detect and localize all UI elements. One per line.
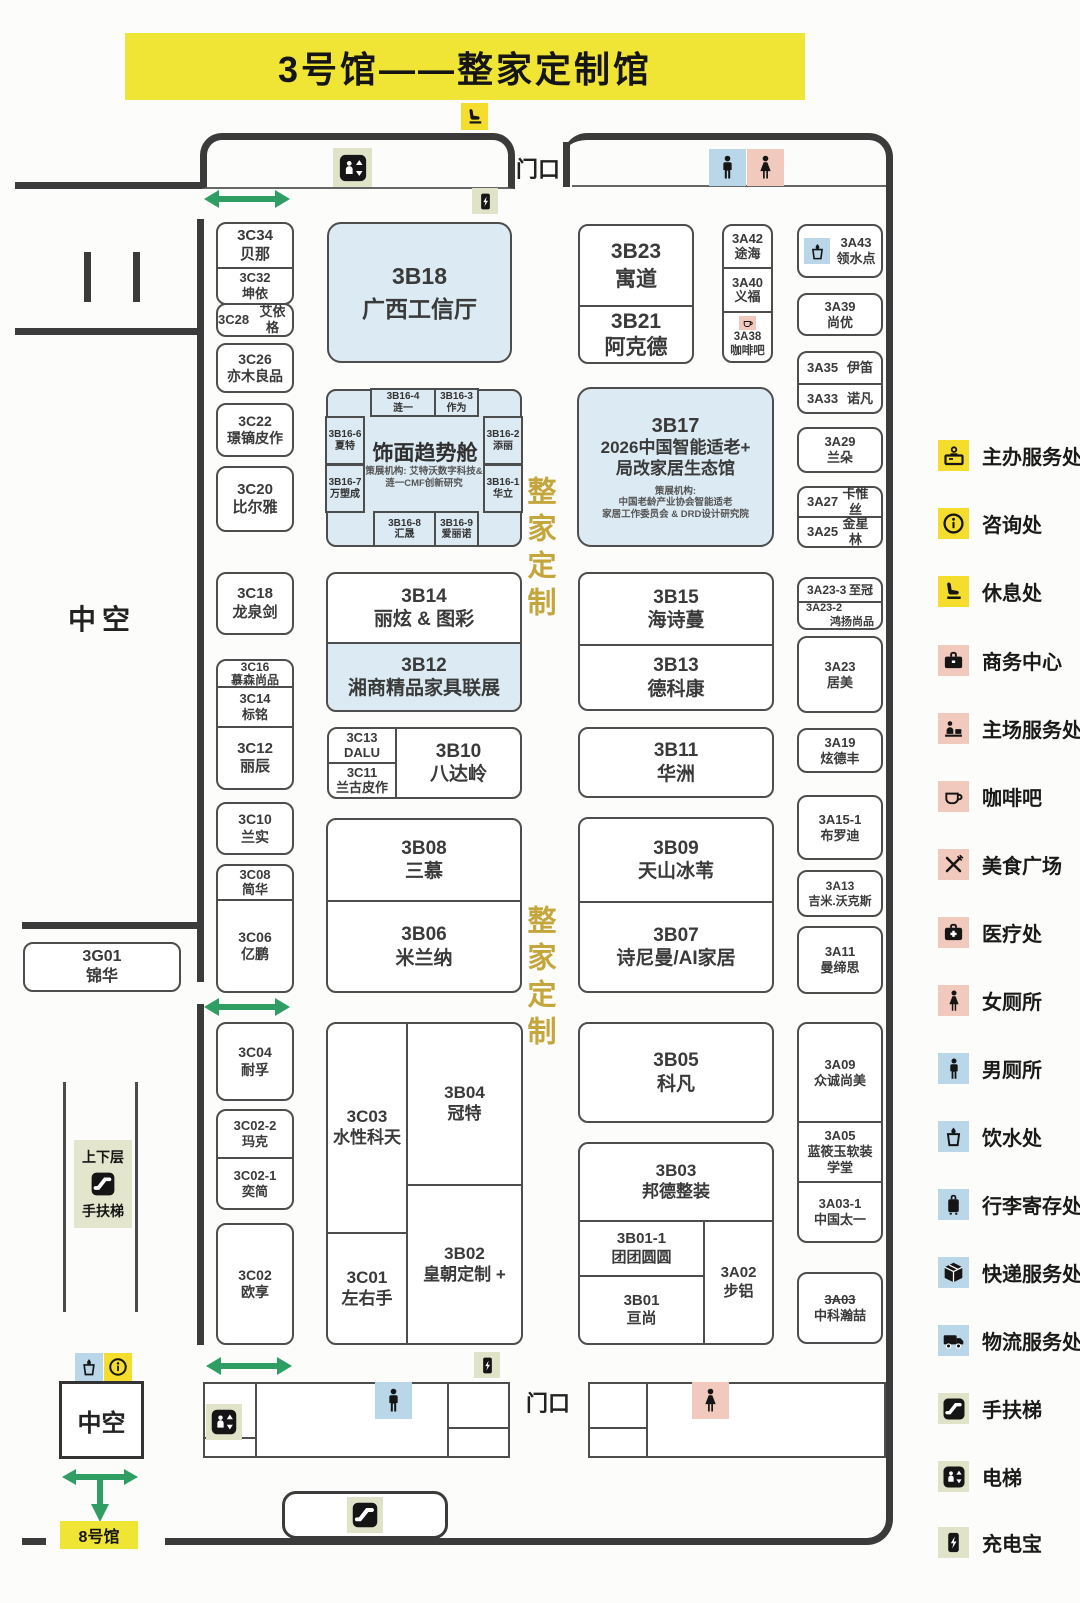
- booth-3A27: 3A27卡惟丝: [797, 486, 883, 518]
- booth-name: 华立: [493, 489, 513, 501]
- booth-name: 尚优: [827, 315, 853, 331]
- booth-name: 卡惟丝: [838, 486, 873, 518]
- legend-item: 主场服务处: [938, 713, 1080, 744]
- exhibition-floor-map: 3号馆——整家定制馆 门口 3C34贝那 3C32坤依 3C28艾依格 3C26…: [0, 0, 1080, 1603]
- elevator-icon: [938, 1461, 969, 1492]
- booth-id: 3B16-1: [487, 477, 520, 489]
- room-divider: [447, 1382, 449, 1458]
- legend-label: 主场服务处: [982, 714, 1080, 743]
- male-icon: [938, 1053, 969, 1084]
- female-icon: [692, 1382, 729, 1419]
- booth-3C32: 3C32坤依: [216, 267, 294, 305]
- booth-id: 3A02: [721, 1264, 757, 1282]
- legend-label: 男厕所: [982, 1054, 1042, 1083]
- booth-3A03-1: 3A03-1中国太一: [797, 1181, 883, 1243]
- reception-desk-icon: [938, 440, 969, 471]
- booth-name: 夏特: [335, 441, 355, 453]
- escalator-level-label: 上下层 手扶梯: [74, 1140, 132, 1228]
- booth-name: 八达岭: [430, 763, 487, 786]
- booth-id: 3B16-7: [329, 477, 362, 489]
- room-divider: [588, 1427, 646, 1429]
- booth-name: 广西工信厅: [362, 295, 477, 323]
- booth-id: 3C26: [238, 351, 271, 368]
- booth-name: 耐孚: [241, 1062, 269, 1079]
- legend-item: 物流服务处: [938, 1325, 1080, 1356]
- booth-name: 寓道: [615, 267, 657, 293]
- booth-id: 3C18: [237, 585, 273, 603]
- booth-id: 3A03-1: [819, 1196, 862, 1212]
- booth-id: 3A39: [824, 299, 855, 315]
- wall-left-main: [197, 219, 204, 982]
- booth-name: 水性科天: [333, 1128, 401, 1149]
- briefcase-icon: [938, 645, 969, 676]
- male-icon: [709, 149, 746, 186]
- booth-id: 3A03: [824, 1292, 855, 1308]
- booth-name: 坤依: [242, 286, 268, 302]
- booth-id: 3B09: [653, 837, 698, 860]
- male-icon: [375, 1382, 412, 1419]
- elevator-icon: [333, 148, 372, 187]
- booth-id: 3A11: [825, 944, 855, 960]
- booth-name: 三慕: [405, 860, 443, 883]
- booth-id: 3A13: [826, 879, 855, 894]
- booth-id: 3B08: [401, 837, 446, 860]
- legend-item: 饮水处: [938, 1121, 1042, 1152]
- booth-id: 3A43: [836, 235, 875, 251]
- booth-name: 2026中国智能适老+: [601, 438, 751, 459]
- booth-name: 爱丽诺: [442, 529, 472, 541]
- booth-3B16-9: 3B16-9爱丽诺: [434, 511, 479, 547]
- booth-name: 诺凡: [847, 391, 873, 407]
- booth-id: 3A15-1: [819, 812, 862, 828]
- booth-name: 咖啡吧: [730, 345, 765, 358]
- parcel-icon: [938, 1257, 969, 1288]
- booth-3A33: 3A33诺凡: [797, 383, 883, 414]
- booth-name: 丽辰: [240, 758, 270, 776]
- page-title: 3号馆——整家定制馆: [125, 33, 805, 100]
- legend-item: 手扶梯: [938, 1393, 1042, 1424]
- booth-name: 科凡: [657, 1073, 695, 1096]
- booth-3B16-4: 3B16-4涟一: [370, 388, 436, 417]
- powerbank-icon: [474, 1352, 500, 1378]
- elevator-icon: [206, 1404, 242, 1440]
- booth-name: 中科瀚喆: [814, 1308, 866, 1324]
- booth-3A39: 3A39尚优: [797, 293, 883, 336]
- wall-pillar: [133, 252, 140, 302]
- entrance-label-top: 门口: [516, 152, 560, 184]
- wall-left-main: [197, 1004, 204, 1345]
- escalator-icon: [938, 1393, 969, 1424]
- wall-segment: [15, 328, 202, 335]
- booth-3B14: 3B14丽炫 & 图彩: [326, 572, 522, 644]
- booth-3C10: 3C10兰实: [216, 802, 294, 855]
- booth-3B02: 3B02皇朝定制 +: [406, 1184, 523, 1345]
- booth-3B11: 3B11华洲: [578, 727, 774, 798]
- booth-id: 3B16-3: [440, 391, 473, 403]
- booth-name: 金星林: [838, 516, 873, 548]
- legend-item: 行李寄存处: [938, 1189, 1080, 1220]
- service-room-row-left: [203, 1382, 510, 1458]
- booth-3C22: 3C22璟镝皮作: [216, 403, 294, 457]
- booth-3A43: 3A43领水点: [797, 224, 883, 278]
- booth-name: 众诚尚美: [814, 1073, 866, 1089]
- legend-item: 美食广场: [938, 849, 1062, 880]
- booth-id: 3C20: [237, 481, 273, 499]
- booth-name: 慕森尚品: [231, 674, 279, 687]
- booth-name: 湘商精品家具联展: [348, 677, 500, 700]
- booth-id: 3B10: [436, 740, 481, 763]
- booth-id: 3B01-1: [617, 1230, 666, 1248]
- booth-id: 3C10: [238, 811, 271, 828]
- booth-name: 比尔雅: [232, 499, 277, 517]
- service-desk-icon: [938, 713, 969, 744]
- female-icon: [747, 149, 784, 186]
- booth-id: 3C34: [237, 227, 273, 245]
- booth-3B16-2: 3B16-2添丽: [483, 416, 523, 465]
- legend-label: 饮水处: [982, 1122, 1042, 1151]
- legend-label: 快递服务处: [982, 1258, 1080, 1287]
- booth-name: 海诗蔓: [647, 609, 704, 632]
- booth-3B05: 3B05科凡: [578, 1022, 774, 1123]
- legend-label: 休息处: [982, 577, 1042, 606]
- booth-name: 兰古皮作: [336, 781, 388, 795]
- booth-3B01-1: 3B01-1团团圆圆: [578, 1220, 705, 1277]
- booth-3B16-6: 3B16-6夏特: [325, 416, 365, 465]
- booth-name: 锦华: [86, 967, 118, 987]
- atrium-label: 中空: [68, 598, 136, 638]
- water-icon: [75, 1353, 103, 1381]
- booth-id: 3A05: [824, 1128, 855, 1144]
- booth-id: 3C13: [346, 731, 377, 745]
- booth-name: 亿鹏: [241, 946, 269, 963]
- booth-id: 3C22: [238, 413, 271, 430]
- booth-name: 鸿扬尚品: [806, 616, 874, 629]
- legend-label: 充电宝: [982, 1528, 1042, 1557]
- food-court-icon: [938, 849, 969, 880]
- booth-name: 兰实: [241, 829, 269, 846]
- booth-name: 领水点: [836, 251, 875, 267]
- booth-3C11: 3C11兰古皮作: [327, 762, 397, 799]
- booth-id: 3C06: [238, 929, 271, 946]
- booth-3A42: 3A42途海: [722, 224, 773, 269]
- booth-id: 3A23: [824, 659, 855, 675]
- booth-3C02-1: 3C02-1奕简: [216, 1157, 294, 1210]
- booth-3G01: 3G01锦华: [23, 942, 181, 992]
- legend-item: 医疗处: [938, 917, 1042, 948]
- female-icon: [938, 985, 969, 1016]
- legend-label: 医疗处: [982, 918, 1042, 947]
- booth-id: 3C08: [239, 868, 270, 882]
- booth-3B16-1: 3B16-1华立: [483, 464, 523, 513]
- hall8-label: 8号馆: [60, 1521, 138, 1549]
- entrance-label-bottom: 门口: [526, 1386, 570, 1418]
- luggage-icon: [938, 1189, 969, 1220]
- room-divider: [447, 1427, 510, 1429]
- booth-id: 3A40: [732, 276, 763, 290]
- booth-subtitle: 策展机构:: [655, 486, 696, 498]
- booth-name: 曼缔思: [820, 960, 859, 976]
- booth-name: 龙泉剑: [232, 604, 277, 622]
- booth-subtitle: 家居工作委员会 & DRD设计研究院: [602, 509, 749, 521]
- escalator-shaft-line: [63, 1082, 66, 1312]
- booth-id: 3B23: [611, 239, 661, 265]
- legend-label: 商务中心: [982, 646, 1062, 675]
- legend-item: 主办服务处: [938, 440, 1080, 471]
- booth-name: 天山冰苇: [638, 860, 714, 883]
- legend-label: 主办服务处: [982, 441, 1080, 470]
- legend-item: 女厕所: [938, 985, 1042, 1016]
- booth-3C18: 3C18龙泉剑: [216, 572, 294, 635]
- booth-3B23: 3B23寓道: [578, 224, 694, 307]
- booth-id: 3A29: [824, 434, 855, 450]
- booth-id: 3B16-2: [487, 429, 520, 441]
- booth-3A11: 3A11曼缔思: [797, 926, 883, 994]
- service-room-row-right: [588, 1382, 886, 1458]
- booth-name: 途海: [734, 247, 760, 261]
- booth-3B17: 3B17 2026中国智能适老+ 局改家居生态馆 策展机构: 中国老龄产业协会智…: [577, 387, 774, 547]
- booth-3B01: 3B01亘尚: [578, 1275, 705, 1345]
- booth-name: 欧享: [241, 1284, 269, 1301]
- booth-name: 蓝筱玉软装学堂: [805, 1144, 875, 1176]
- legend-item: 商务中心: [938, 645, 1062, 676]
- booth-name: 炫德丰: [820, 751, 859, 767]
- booth-id: 3B07: [653, 924, 698, 947]
- rest-seat-icon: [461, 103, 488, 130]
- escalator-label-top: 上下层: [82, 1147, 124, 1167]
- booth-3C20: 3C20比尔雅: [216, 466, 294, 532]
- truck-icon: [938, 1325, 969, 1356]
- legend-label: 女厕所: [982, 986, 1042, 1015]
- room-divider: [646, 1382, 648, 1458]
- booth-id: 3B02: [444, 1244, 485, 1265]
- booth-name: 华洲: [657, 763, 695, 786]
- booth-name: 居美: [827, 675, 853, 691]
- booth-id: 3C01: [347, 1268, 388, 1289]
- aisle-arrow: [206, 1354, 292, 1378]
- water-icon: [804, 238, 830, 264]
- legend-label: 美食广场: [982, 850, 1062, 879]
- booth-id: 3C04: [238, 1044, 271, 1061]
- booth-name: 伊笛: [847, 360, 873, 376]
- booth-3C26: 3C26亦木良品: [216, 343, 294, 393]
- rest-seat-icon: [938, 576, 969, 607]
- escalator-icon: [347, 1497, 383, 1533]
- booth-name: 涟一: [393, 403, 413, 415]
- booth-id: 3C02-2: [234, 1118, 277, 1134]
- booth-3C08: 3C08简华: [216, 864, 294, 901]
- booth-3C06: 3C06亿鹏: [216, 899, 294, 993]
- booth-name: 玛克: [242, 1134, 268, 1150]
- booth-3C34: 3C34贝那: [216, 222, 294, 269]
- booth-id: 3A38: [734, 331, 762, 344]
- booth-id: 3B16-9: [440, 518, 473, 530]
- info-icon: [104, 1353, 132, 1381]
- booth-name: 璟镝皮作: [227, 430, 283, 447]
- booth-3C16: 3C16慕森尚品: [216, 659, 294, 688]
- legend-label: 物流服务处: [982, 1326, 1080, 1355]
- legend-label: 咨询处: [982, 509, 1042, 538]
- legend-item: 男厕所: [938, 1053, 1042, 1084]
- wall-bottom: [165, 1538, 565, 1545]
- legend-item: 充电宝: [938, 1527, 1042, 1558]
- booth-id: 3B04: [444, 1083, 485, 1104]
- booth-3A13: 3A13吉米.沃克斯: [797, 870, 883, 917]
- water-icon: [938, 1121, 969, 1152]
- medical-icon: [938, 917, 969, 948]
- booth-3C12: 3C12丽辰: [216, 726, 294, 790]
- booth-3C01: 3C01左右手: [326, 1232, 408, 1345]
- booth-id: 3A33: [807, 391, 838, 407]
- booth-id: 3A42: [732, 232, 763, 246]
- booth-3A05: 3A05蓝筱玉软装学堂: [797, 1121, 883, 1183]
- booth-3A40: 3A40义福: [722, 267, 773, 313]
- booth-id: 3A35: [807, 360, 838, 376]
- booth-name: 亦木良品: [227, 368, 283, 385]
- booth-id: 3B15: [653, 586, 698, 609]
- wall-segment: [15, 182, 202, 189]
- booth-id: 3C14: [239, 691, 270, 707]
- booth-name: 标铭: [242, 707, 268, 723]
- booth-name: 简华: [242, 883, 268, 897]
- booth-3B12: 3B12湘商精品家具联展: [326, 642, 522, 712]
- booth-3B18: 3B18广西工信厅: [327, 222, 512, 363]
- booth-id: 3B13: [653, 654, 698, 677]
- booth-id: 3G01: [82, 947, 121, 967]
- booth-3C02-2: 3C02-2玛克: [216, 1109, 294, 1159]
- booth-id: 3B18: [392, 262, 447, 290]
- booth-name: 布罗迪: [820, 828, 859, 844]
- booth-name: 局改家居生态馆: [616, 459, 735, 480]
- booth-3C14: 3C14标铭: [216, 686, 294, 728]
- booth-id: 3A27: [807, 494, 838, 510]
- booth-id: 3A19: [824, 735, 855, 751]
- aisle-arrow: [204, 995, 290, 1019]
- booth-id: 3B21: [611, 309, 661, 335]
- booth-name: 中国太一: [814, 1212, 866, 1228]
- booth-name: 至冠: [849, 583, 873, 598]
- booth-3A35: 3A35伊笛: [797, 351, 883, 385]
- booth-name: 米兰纳: [395, 947, 452, 970]
- booth-3C04: 3C04耐孚: [216, 1022, 294, 1101]
- booth-3B10: 3B10八达岭: [395, 727, 522, 799]
- booth-id: 3B16-4: [387, 391, 420, 403]
- info-icon: [938, 508, 969, 539]
- booth-3B03: 3B03邦德整装: [578, 1142, 774, 1222]
- coffee-icon: [938, 781, 969, 812]
- wall-segment: [22, 922, 202, 929]
- booth-3B16-3: 3B16-3作为: [434, 388, 479, 417]
- booth-3C02: 3C02欧享: [216, 1223, 294, 1345]
- powerbank-icon: [472, 188, 498, 214]
- booth-3A38: 3A38咖啡吧: [722, 311, 773, 363]
- booth-id: 3C28: [218, 312, 249, 328]
- booth-3A29: 3A29兰朵: [797, 427, 883, 473]
- booth-3B08: 3B08三慕: [326, 818, 522, 902]
- booth-id: 3B17: [652, 414, 700, 438]
- booth-name: 万塑成: [330, 489, 360, 501]
- booth-name: 步铝: [723, 1283, 753, 1301]
- escalator-icon: [89, 1170, 117, 1198]
- booth-3B06: 3B06米兰纳: [326, 900, 522, 993]
- booth-id: 3B16-6: [329, 429, 362, 441]
- legend-label: 手扶梯: [982, 1394, 1042, 1423]
- booth-id: 3C32: [239, 270, 270, 286]
- booth-id: 3B06: [401, 923, 446, 946]
- booth-name: 艾依格: [253, 304, 292, 336]
- facade-title: 饰面趋势舱: [350, 437, 500, 467]
- aisle-arrow: [204, 187, 290, 211]
- booth-id: 3B03: [656, 1161, 697, 1182]
- legend-label: 电梯: [982, 1462, 1022, 1491]
- booth-3B09: 3B09天山冰苇: [578, 817, 774, 903]
- booth-3B16-7: 3B16-7万塑成: [325, 464, 365, 513]
- booth-name: 作为: [447, 403, 467, 415]
- booth-name: 诗尼曼/AI家居: [616, 947, 735, 970]
- zone-label-vertical: 整家定制: [524, 476, 553, 624]
- booth-name: 邦德整装: [642, 1182, 710, 1203]
- booth-3B04: 3B04冠特: [406, 1022, 523, 1186]
- booth-id: 3A09: [824, 1057, 855, 1073]
- booth-name: 吉米.沃克斯: [808, 894, 871, 909]
- booth-3A23-3: 3A23-3至冠: [797, 577, 883, 603]
- legend-label: 咖啡吧: [982, 782, 1042, 811]
- zone-label-vertical: 整家定制: [524, 905, 553, 1053]
- coffee-icon: [739, 316, 756, 330]
- booth-name: 阿克德: [605, 335, 668, 361]
- booth-name: 皇朝定制 +: [423, 1265, 506, 1286]
- booth-subtitle: 中国老龄产业协会智能适老: [618, 497, 732, 509]
- booth-name: 丽炫 & 图彩: [374, 608, 474, 631]
- booth-name: DALU: [344, 746, 380, 760]
- legend-item: 咖啡吧: [938, 781, 1042, 812]
- booth-id: 3C16: [241, 661, 270, 674]
- atrium-box: 中空: [59, 1381, 144, 1459]
- booth-id: 3A23-3: [807, 583, 846, 598]
- powerbank-icon: [938, 1527, 969, 1558]
- booth-id: 3A23-2: [806, 602, 874, 615]
- booth-3A25: 3A25金星林: [797, 516, 883, 548]
- legend-item: 咨询处: [938, 508, 1042, 539]
- booth-id: 3C02-1: [234, 1168, 277, 1184]
- booth-name: 冠特: [448, 1104, 482, 1125]
- booth-3A19: 3A19炫德丰: [797, 728, 883, 773]
- booth-name: 兰朵: [827, 450, 853, 466]
- legend-item: 快递服务处: [938, 1257, 1080, 1288]
- booth-3B21: 3B21阿克德: [578, 305, 694, 364]
- legend-label: 行李寄存处: [982, 1190, 1080, 1219]
- booth-3C03: 3C03水性科天: [326, 1022, 408, 1234]
- booth-3B07: 3B07诗尼曼/AI家居: [578, 901, 774, 993]
- booth-id: 3C02: [238, 1267, 271, 1284]
- aisle-arrow-down: [62, 1466, 138, 1522]
- booth-id: 3C12: [237, 740, 273, 758]
- booth-name: 亘尚: [626, 1310, 656, 1328]
- booth-id: 3B05: [653, 1049, 698, 1072]
- booth-3A03: 3A03中科瀚喆: [797, 1272, 883, 1344]
- escalator-label-bottom: 手扶梯: [82, 1201, 124, 1221]
- wall-stub: [22, 1538, 46, 1545]
- legend-item: 电梯: [938, 1461, 1022, 1492]
- wall-segment: [563, 142, 570, 187]
- escalator-bay: [282, 1491, 448, 1539]
- booth-3A09: 3A09众诚尚美: [797, 1022, 883, 1123]
- booth-name: 义福: [734, 290, 760, 304]
- booth-name: 左右手: [342, 1289, 393, 1310]
- booth-3A23: 3A23居美: [797, 636, 883, 713]
- booth-id: 3A25: [807, 524, 838, 540]
- wall-pillar: [84, 252, 91, 302]
- booth-3B15: 3B15海诗蔓: [578, 572, 774, 646]
